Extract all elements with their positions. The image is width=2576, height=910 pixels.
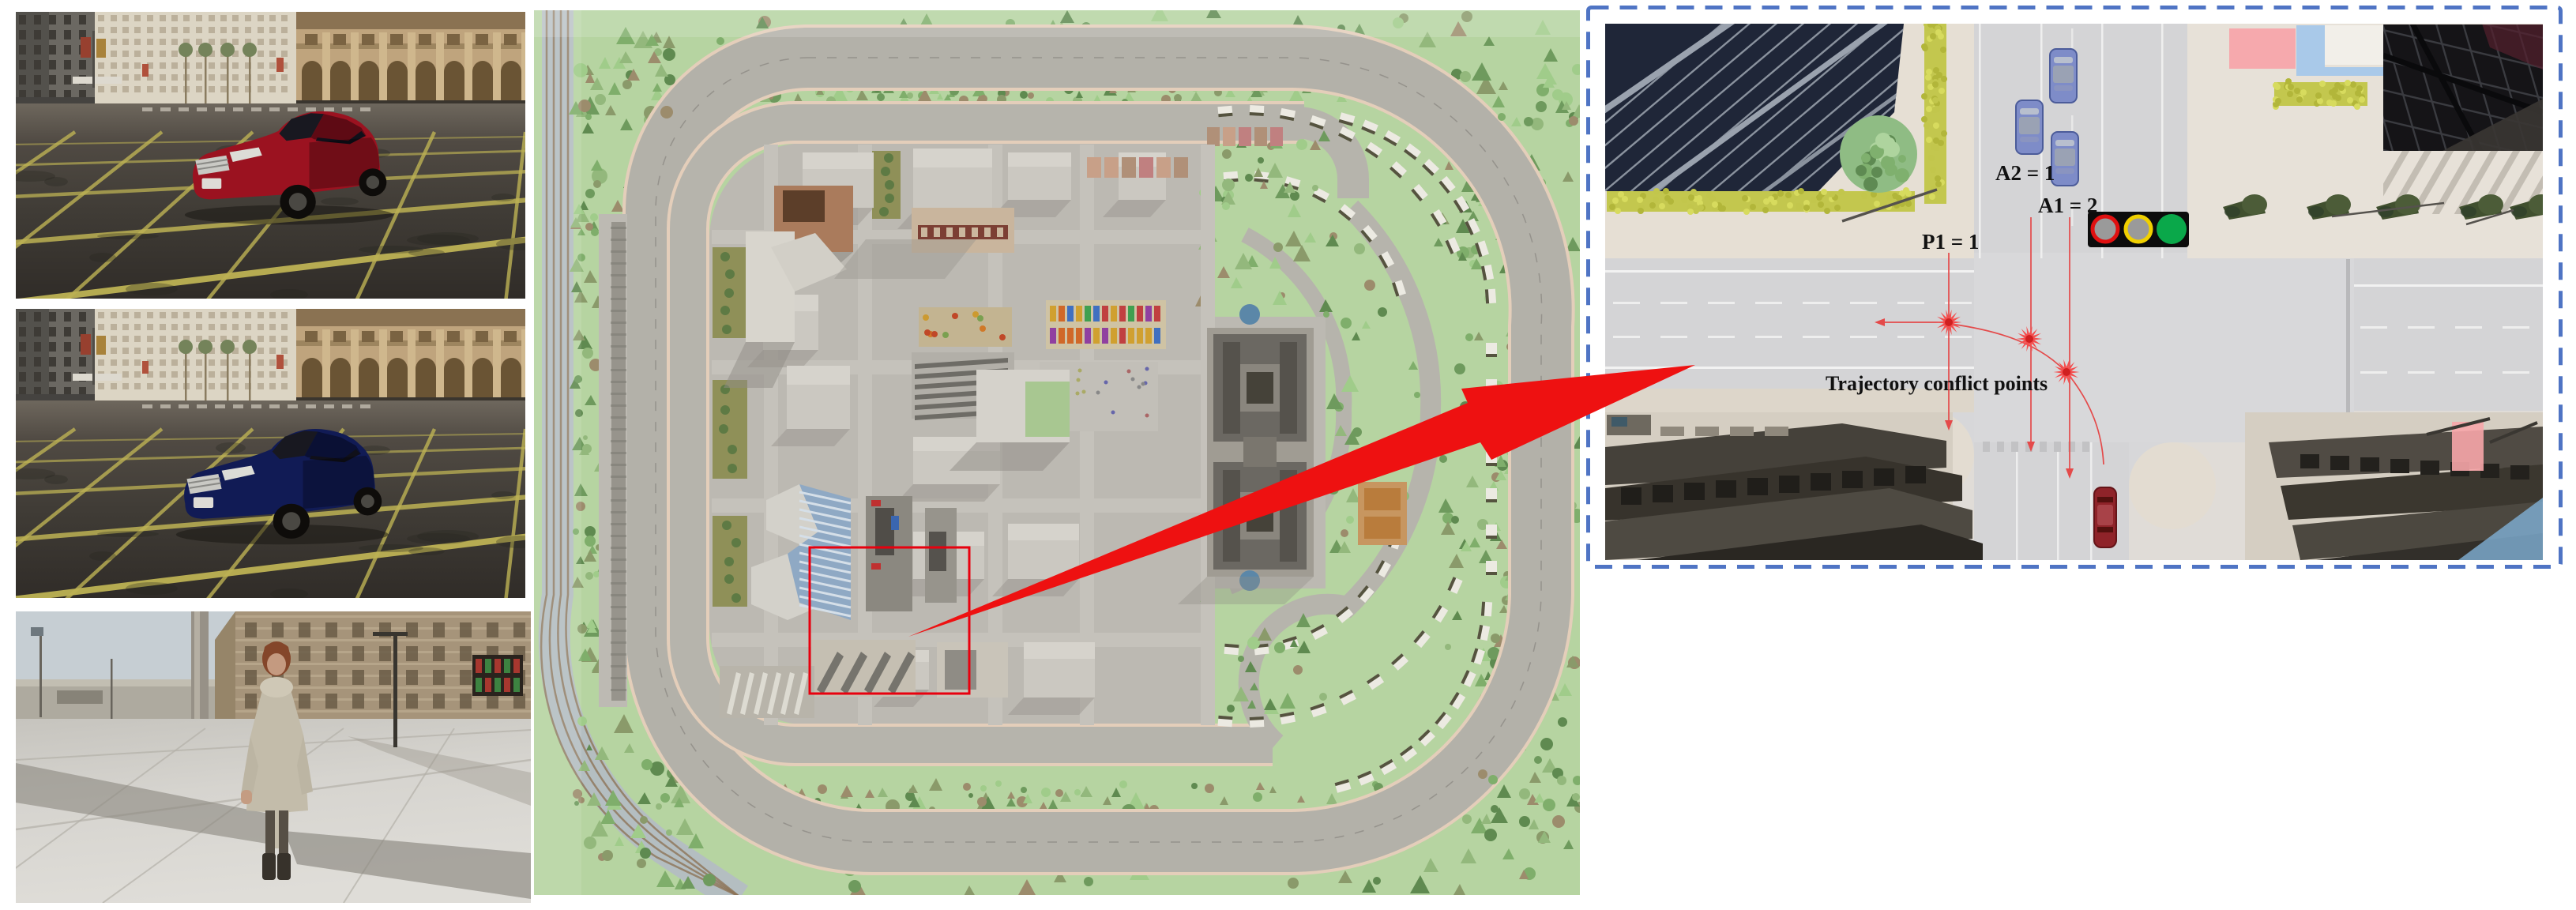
svg-text:P1 = 1: P1 = 1 <box>1922 230 1979 254</box>
svg-text:A1 = 2: A1 = 2 <box>2038 194 2097 217</box>
svg-text:A2 = 1: A2 = 1 <box>1995 161 2055 185</box>
svg-text:Trajectory conflict points: Trajectory conflict points <box>1826 372 2048 395</box>
